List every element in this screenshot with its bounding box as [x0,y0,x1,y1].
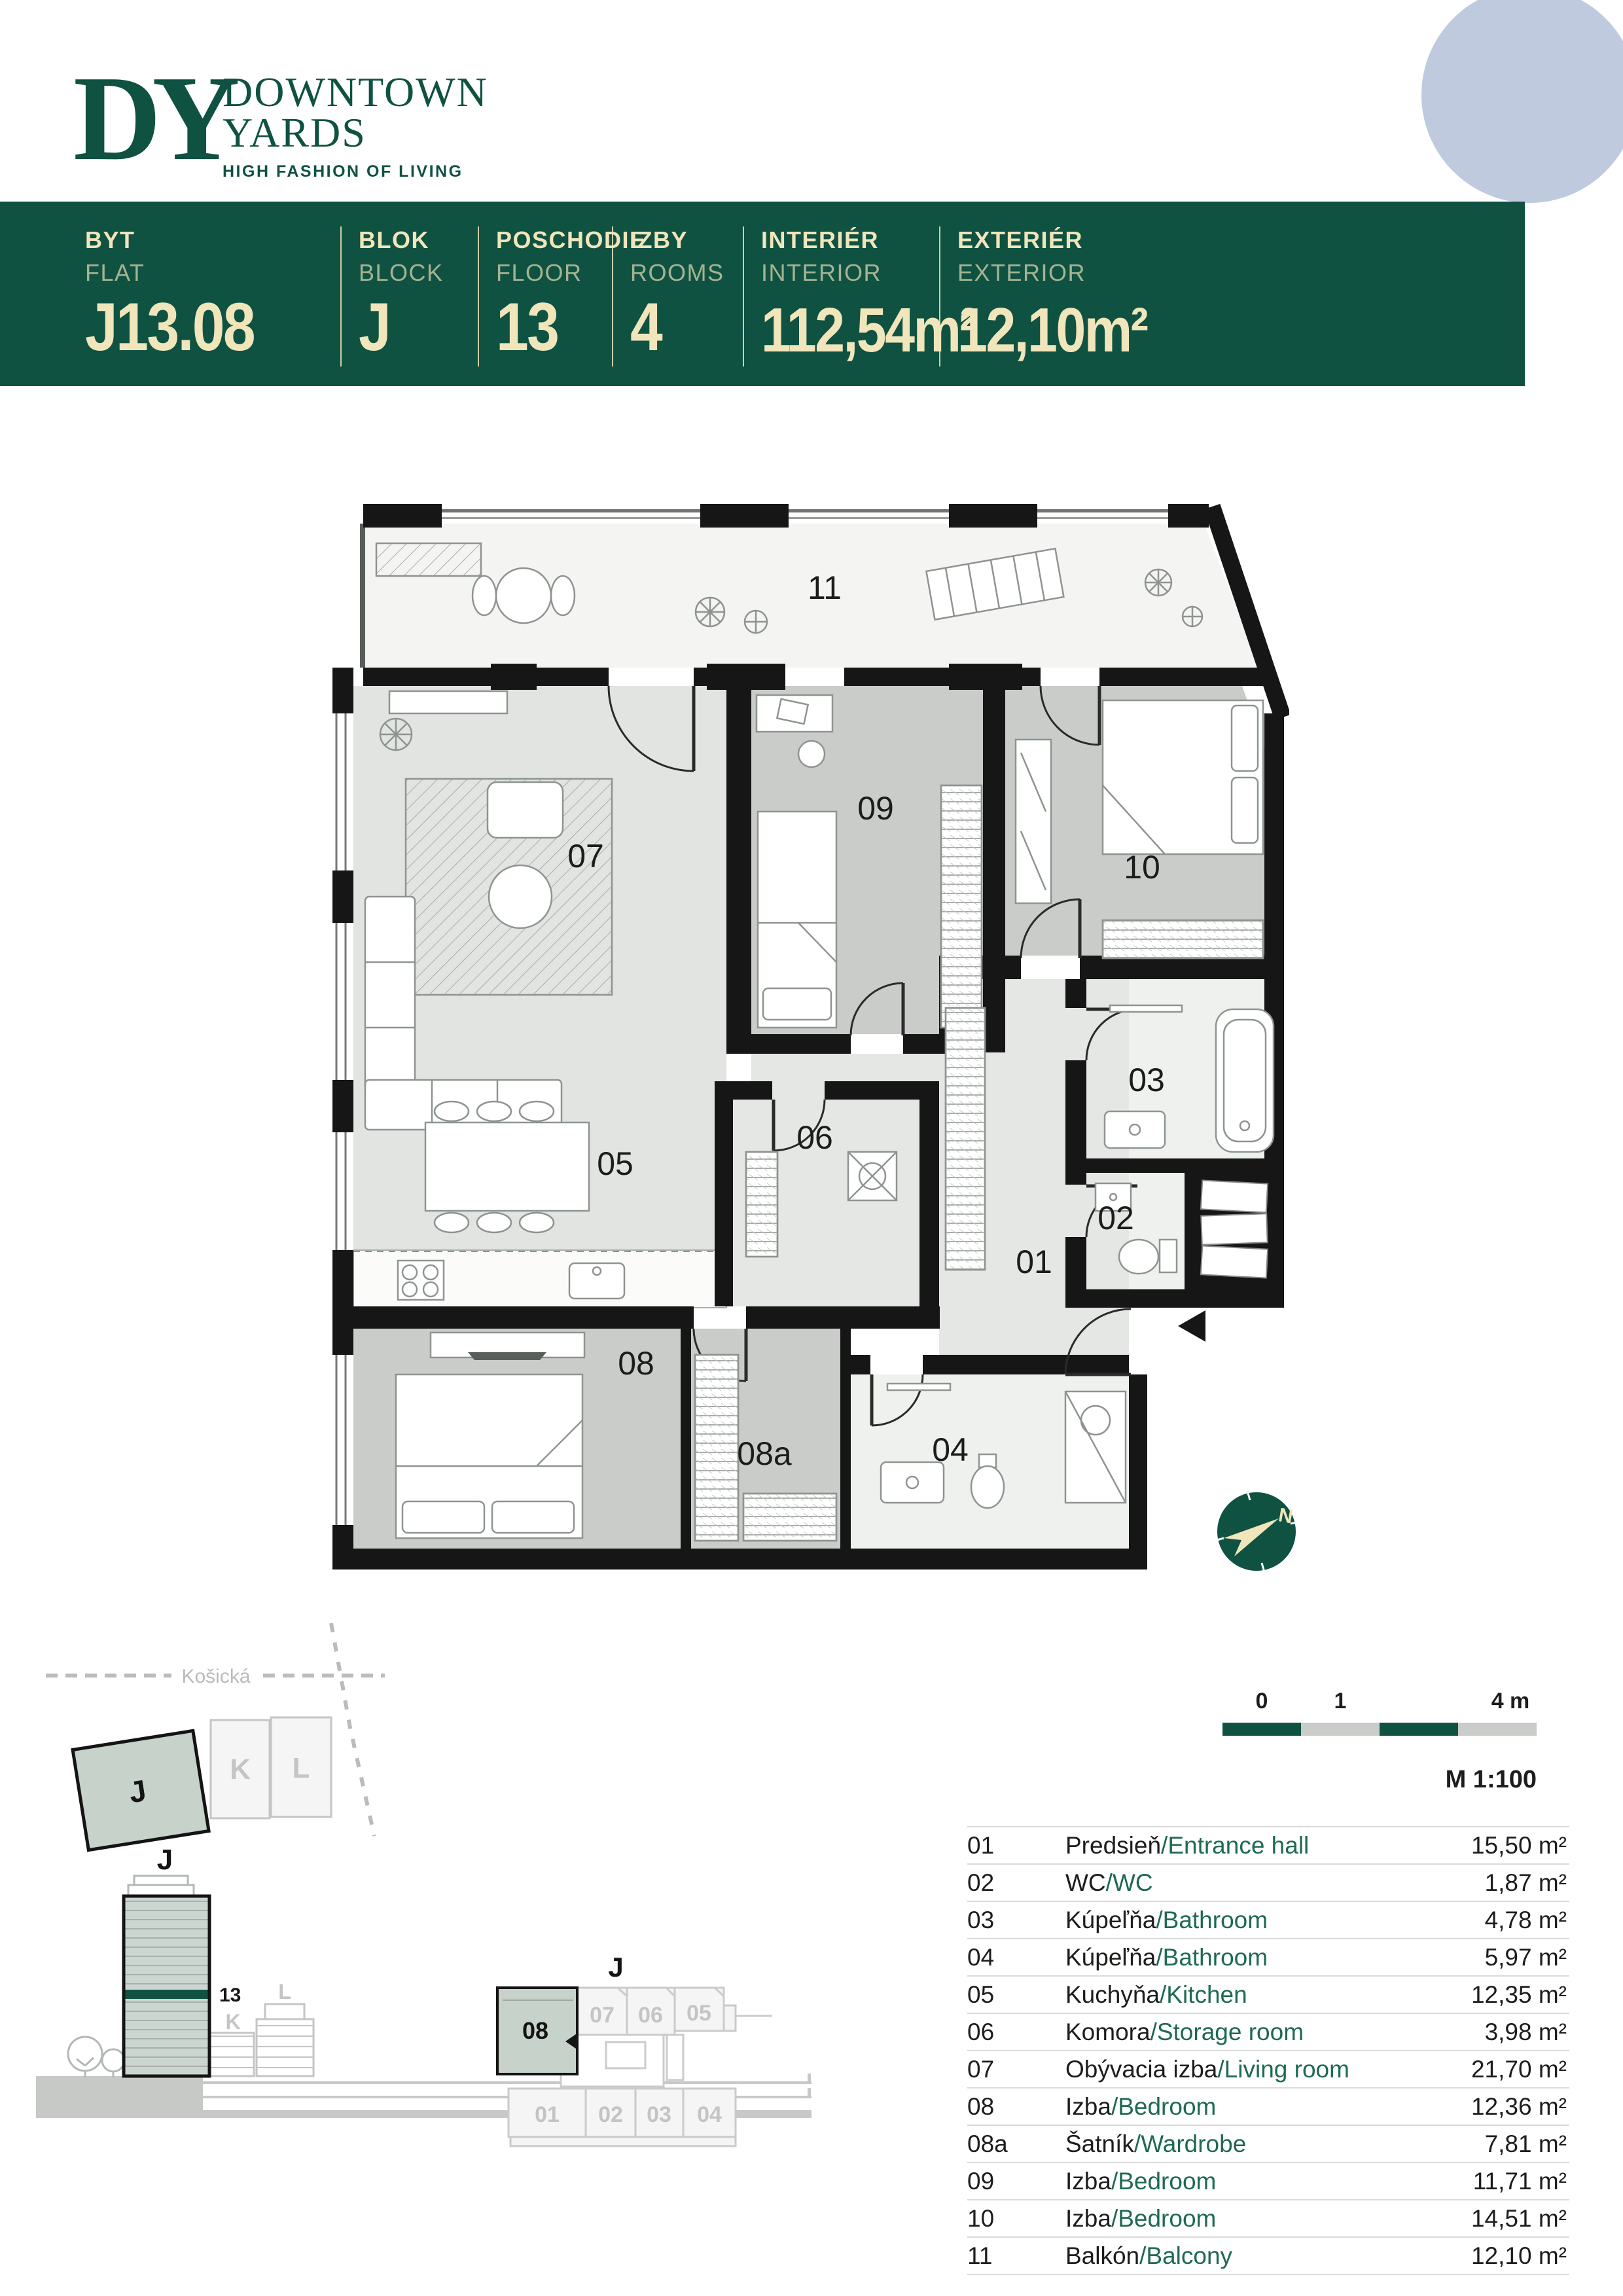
pillow-icon [763,988,831,1020]
block-label-sk: BLOK [359,226,476,254]
plant-icon [1145,569,1171,596]
cabinet-icon [1016,740,1051,903]
window-icon [331,1355,353,1525]
sink-icon [1105,1111,1165,1148]
legend-separator: / [1111,2093,1118,2120]
legend-name: Izba/Bedroom [1065,2168,1442,2195]
sink-icon [881,1462,944,1503]
legend-row: 06 Komora/Storage room 3,98 m² [967,2013,1569,2050]
scale-bar-segments [1222,1723,1537,1736]
legend-name-en: Wardrobe [1141,2130,1246,2157]
legend-name-sk: Izba [1065,2168,1111,2195]
legend-area: 11,71 m² [1442,2168,1569,2195]
block-k-label: K [230,1753,251,1785]
room-label-10: 10 [1124,849,1160,886]
chair-icon [798,741,825,767]
legend-row: 08 Izba/Bedroom 12,36 m² [967,2087,1569,2125]
legend-area: 12,10 m² [1442,2242,1569,2270]
unit-04-label: 04 [697,2102,722,2127]
flat-card-page: DY DOWNTOWN YARDS HIGH FASHION OF LIVING… [0,0,1623,2296]
legend-area: 7,81 m² [1442,2130,1569,2158]
coffee-table-icon [489,865,552,928]
banner-col-block: BLOK BLOCK J [340,226,476,367]
balcony-table-icon [496,568,551,623]
exterior-label-sk: EXTERIÉR [957,226,1154,254]
legend-id: 08a [967,2130,1065,2158]
boundary-line [331,1623,374,1836]
floor-value: 13 [496,289,558,367]
plant-icon [696,598,724,626]
decorative-circle [1421,0,1623,203]
legend-area: 1,87 m² [1442,1869,1569,1897]
legend-separator: / [1156,1944,1162,1971]
hall-furniture [946,1008,985,1270]
legend-name-en: Bathroom [1163,1907,1268,1933]
legend-separator: / [1217,2056,1224,2083]
legend-name-sk: Komora [1065,2018,1150,2045]
scale-ratio-label: M 1:100 [1446,1766,1537,1794]
legend-row: 10 Izba/Bedroom 14,51 m² [967,2199,1569,2236]
unit-06-label: 06 [638,2003,663,2028]
toilet-icon [971,1466,1004,1508]
floor-plan: 11 07 09 10 03 02 01 05 06 08 08a 04 [327,504,1289,1577]
legend-name-sk: Šatník [1065,2130,1134,2157]
legend-area: 21,70 m² [1442,2056,1569,2083]
elevation-l-label: L [278,1980,291,2003]
logo-words: DOWNTOWN YARDS HIGH FASHION OF LIVING [223,72,488,181]
scale-tick-0: 0 [1256,1689,1268,1714]
legend-id: 05 [967,1981,1065,2009]
window-icon [331,713,353,870]
elevation-k-label: K [225,2010,240,2034]
legend-area: 12,36 m² [1442,2093,1569,2121]
armchair-icon [488,782,563,838]
legend-separator: / [1156,1907,1162,1933]
plant-icon [1183,607,1202,626]
room-label-11: 11 [808,569,842,606]
block-value: J [359,289,389,367]
legend-id: 06 [967,2018,1065,2046]
legend-area: 12,35 m² [1442,1981,1569,2009]
flat-label-sk: BYT [85,226,334,254]
legend-separator: / [1139,2242,1146,2269]
legend-name: Balkón/Balcony [1065,2242,1442,2270]
street-label: Košická [181,1666,250,1687]
sink-icon [569,1263,624,1299]
legend-name-sk: Obývacia izba [1065,2056,1217,2083]
legend-row: 08a Šatník/Wardrobe 7,81 m² [967,2125,1569,2162]
banner-col-exterior: EXTERIÉR EXTERIOR 12,10m² [939,226,1154,367]
dining-table-icon [425,1122,589,1211]
logo-monogram: DY [73,58,231,179]
legend-area: 15,50 m² [1442,1832,1569,1859]
legend-name: Kuchyňa/Kitchen [1065,1981,1442,2009]
legend-id: 09 [967,2168,1065,2195]
legend-name-en: Living room [1224,2056,1349,2083]
rooms-label-en: ROOMS [630,259,745,287]
legend-row: 05 Kuchyňa/Kitchen 12,35 m² [967,1975,1569,2013]
unit-02-label: 02 [598,2102,623,2127]
legend-name-en: Kitchen [1166,1981,1247,2008]
room-label-06: 06 [796,1119,833,1156]
unit-03-label: 03 [647,2102,671,2127]
room-label-08: 08 [618,1345,654,1382]
legend-separator: / [1111,2205,1118,2232]
room-label-08a: 08a [737,1435,792,1472]
legend-name-sk: Izba [1065,2205,1111,2232]
pillow-icon [492,1501,574,1533]
shaft-icon [1201,1180,1268,1278]
rooms-label-sk: IZBY [630,226,745,254]
legend-id: 04 [967,1944,1065,1971]
unit-07-label: 07 [590,2003,615,2028]
legend-row: 09 Izba/Bedroom 11,71 m² [967,2162,1569,2199]
legend-id: 07 [967,2056,1065,2083]
unit-05-label: 05 [687,2001,711,2026]
legend-name-en: Storage room [1157,2018,1304,2045]
unit-08-label: 08 [522,2017,548,2044]
legend-row: 01 Predsieň/Entrance hall 15,50 m² [967,1826,1569,1863]
interior-label-sk: INTERIÉR [761,226,941,254]
legend-name-sk: WC [1065,1869,1106,1896]
flat-number: J13.08 [85,289,254,367]
logo-tagline: HIGH FASHION OF LIVING [223,162,488,181]
room-label-01: 01 [1016,1244,1052,1280]
legend-name: Komora/Storage room [1065,2018,1442,2046]
legend-name-sk: Balkón [1065,2242,1139,2269]
floor-13-band [124,1990,209,1999]
legend-separator: / [1134,2130,1141,2157]
pillow-icon [402,1501,484,1533]
room-label-09: 09 [857,790,894,827]
legend-name-en: Bathroom [1163,1944,1268,1971]
legend-separator: / [1161,1832,1168,1859]
legend-name-sk: Kúpeľňa [1065,1907,1156,1933]
roof-structure [134,1876,188,1885]
flat-info-banner: BYT FLAT J13.08 BLOK BLOCK J POSCHODIE F… [0,202,1525,386]
legend-separator: / [1160,1981,1166,2008]
exterior-label-en: EXTERIOR [957,259,1154,287]
window-icon [331,1132,353,1250]
legend-name: Kúpeľňa/Bathroom [1065,1944,1442,1971]
entrance-arrow-icon [1178,1310,1205,1342]
legend-id: 08 [967,2093,1065,2121]
legend-area: 14,51 m² [1442,2205,1569,2233]
legend-name-en: Bedroom [1118,2168,1216,2195]
legend-row: 11 Balkón/Balcony 12,10 m² [967,2236,1569,2275]
legend-name-en: Balcony [1146,2242,1232,2269]
banner-col-rooms: IZBY ROOMS 4 [612,226,745,367]
roof-structure [128,1885,194,1896]
legend-row: 07 Obývacia izba/Living room 21,70 m² [967,2050,1569,2087]
legend-area: 3,98 m² [1442,2018,1569,2046]
flat-label-en: FLAT [85,259,334,287]
legend-name-sk: Kúpeľňa [1065,1944,1156,1971]
banner-col-floor: POSCHODIE FLOOR 13 [478,226,614,367]
room-label-03: 03 [1128,1062,1165,1098]
compass: N [1209,1484,1308,1583]
logo-line-1: DOWNTOWN [223,72,488,113]
legend-row: 02 WC/WC 1,87 m² [967,1863,1569,1901]
tv-icon [468,1352,546,1360]
pillow-icon [1232,706,1258,771]
banner-col-flat: BYT FLAT J13.08 [85,226,334,367]
floor-key-plan: J 08 07 06 05 01 02 03 0 [478,1950,798,2258]
legend-name-en: Bedroom [1118,2093,1216,2120]
legend-name-en: Entrance hall [1168,1832,1309,1859]
plant-icon [380,719,412,750]
tower-j-label: J [157,1844,173,1876]
block-label-en: BLOCK [359,259,476,287]
room-label-05: 05 [597,1145,633,1182]
block-l-label: L [293,1752,310,1784]
legend-name-sk: Izba [1065,2093,1111,2120]
scale-bar: 0 1 4 m M 1:100 [1222,1689,1553,1803]
room-label-04: 04 [932,1431,969,1468]
legend-name-en: Bedroom [1118,2205,1216,2232]
toilet-icon [1119,1240,1158,1274]
sofa-icon [365,897,415,1093]
legend-name: Izba/Bedroom [1065,2093,1442,2121]
logo-line-2: YARDS [223,113,488,153]
legend-separator: / [1106,1869,1113,1896]
legend-separator: / [1111,2168,1118,2195]
room-legend: 01 Predsieň/Entrance hall 15,50 m² 02 WC… [967,1826,1569,2275]
legend-id: 01 [967,1832,1065,1859]
legend-name: Kúpeľňa/Bathroom [1065,1907,1442,1934]
room-label-07: 07 [567,838,604,874]
banner-col-interior: INTERIÉR INTERIOR 112,54m² [743,226,941,367]
interior-label-en: INTERIOR [761,259,941,287]
exterior-area: 12,10m² [957,295,1147,367]
legend-area: 4,78 m² [1442,1907,1569,1934]
legend-name-en: WC [1113,1869,1153,1896]
keyplan-building-label: J [608,1952,623,1982]
rooms-value: 4 [630,289,661,367]
window-icon [331,923,353,1080]
floor-label-sk: POSCHODIE [496,226,614,254]
legend-name: WC/WC [1065,1869,1442,1897]
legend-name: Obývacia izba/Living room [1065,2056,1442,2083]
legend-id: 10 [967,2205,1065,2233]
legend-separator: / [1150,2018,1157,2045]
floor-marker-label: 13 [219,1984,241,2006]
legend-area: 5,97 m² [1442,1944,1569,1971]
tree-icon [68,2037,124,2077]
legend-id: 03 [967,1907,1065,1934]
floor-label-en: FLOOR [496,259,614,287]
cistern-icon [1160,1240,1177,1272]
plant-icon [745,611,767,633]
room-label-02: 02 [1097,1200,1134,1236]
unit-01-label: 01 [535,2102,560,2127]
legend-row: 03 Kúpeľňa/Bathroom 4,78 m² [967,1901,1569,1938]
scale-tick-4m: 4 m [1491,1689,1530,1714]
legend-name-sk: Predsieň [1065,1832,1161,1859]
legend-name: Predsieň/Entrance hall [1065,1832,1442,1859]
legend-name-sk: Kuchyňa [1065,1981,1160,2008]
legend-id: 11 [967,2242,1065,2270]
scale-tick-1: 1 [1334,1689,1347,1714]
block-j: J [73,1731,209,1850]
legend-name: Šatník/Wardrobe [1065,2130,1442,2158]
legend-row: 04 Kúpeľňa/Bathroom 5,97 m² [967,1938,1569,1975]
legend-id: 02 [967,1869,1065,1897]
legend-name: Izba/Bedroom [1065,2205,1442,2233]
pillow-icon [1232,778,1258,843]
